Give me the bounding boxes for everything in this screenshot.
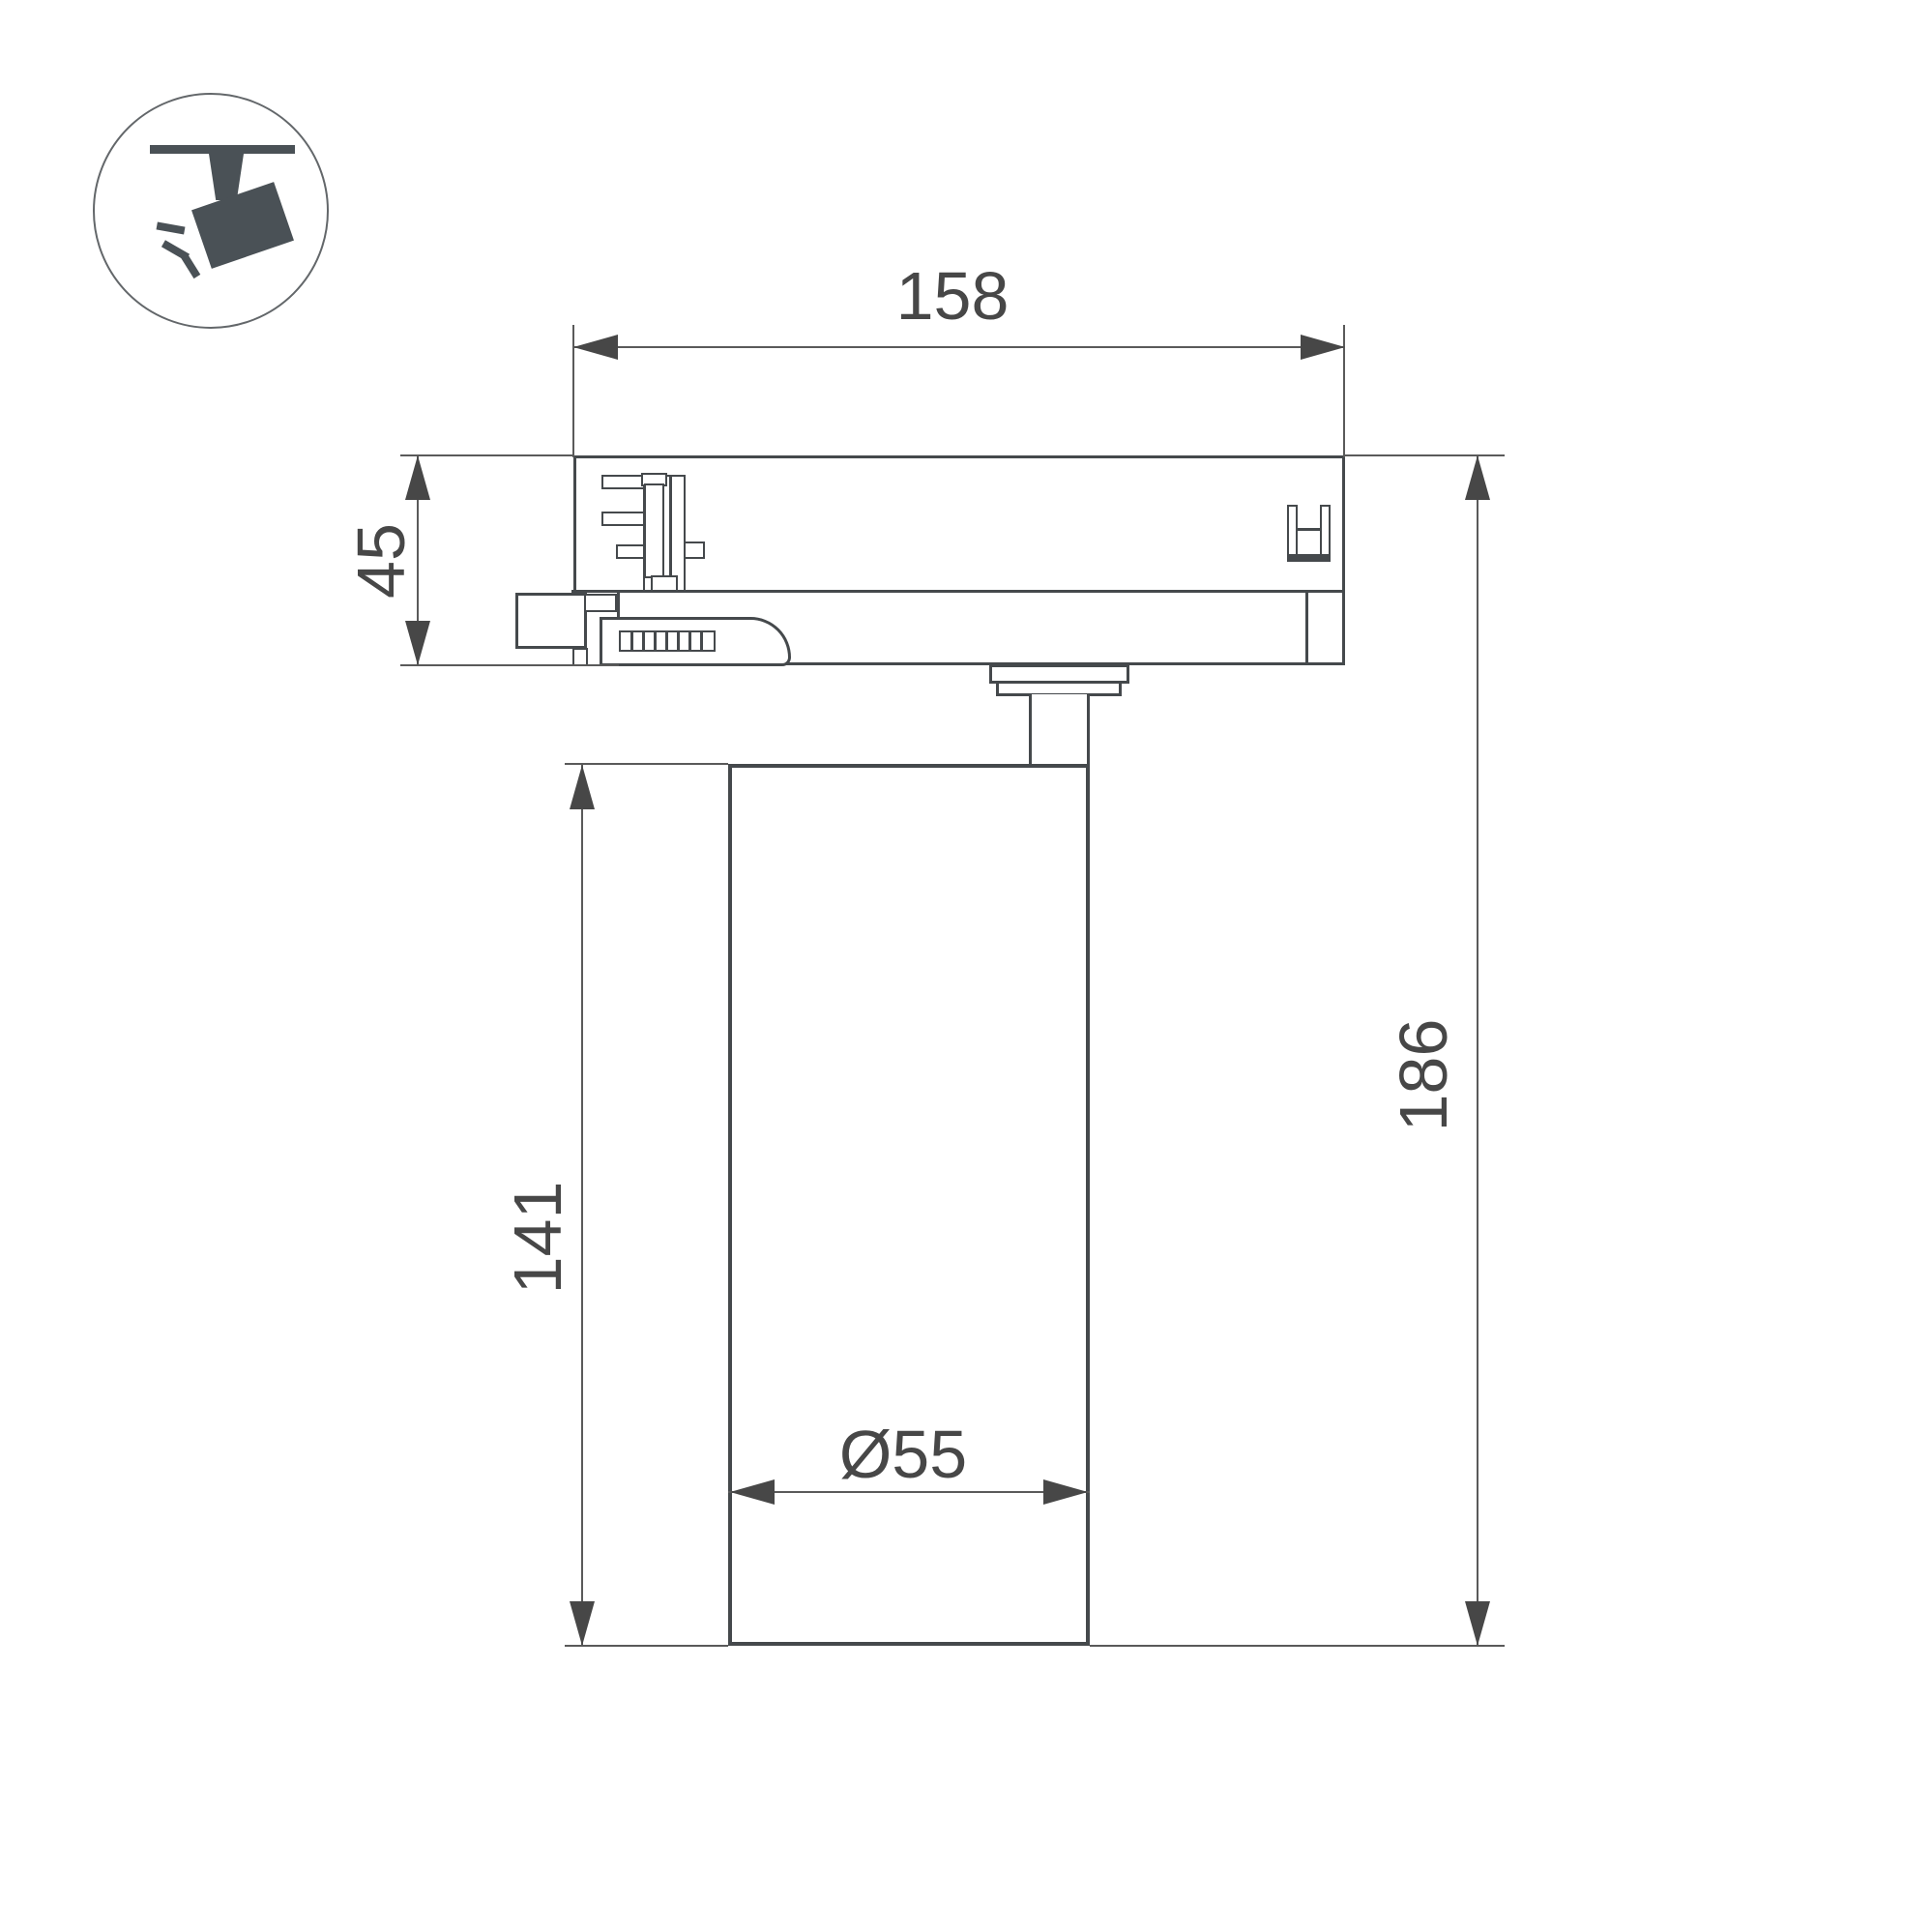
arrowhead — [1465, 1601, 1490, 1646]
channel-bottom — [1287, 554, 1331, 562]
drawing-canvas: 158 45 141 186 Ø55 — [0, 0, 1932, 1932]
adapter-strip-divider — [1305, 590, 1308, 665]
spot-head-icon — [191, 182, 294, 269]
track-bar-icon — [150, 145, 295, 154]
latch-lever — [515, 593, 587, 649]
arrowhead — [730, 1479, 775, 1505]
dim-label-body-height: 141 — [504, 1131, 571, 1344]
light-ray-icon — [157, 222, 186, 235]
contact-tab — [684, 542, 705, 559]
latch-step — [584, 594, 617, 612]
pivot-stem — [1029, 694, 1090, 768]
arrowhead — [1301, 335, 1345, 360]
dim-label-diameter: Ø55 — [777, 1420, 1029, 1488]
grip-rib — [630, 632, 633, 650]
dim-label-total-height: 186 — [1390, 969, 1457, 1182]
track-spotlight-icon — [93, 93, 329, 329]
arrowhead — [570, 765, 595, 809]
dim-label-width: 158 — [846, 262, 1059, 330]
grip-rib — [677, 632, 680, 650]
adapter-body — [573, 455, 1345, 593]
dim-line-141 — [581, 765, 583, 1646]
contact-carrier-inner-line — [669, 477, 672, 590]
arrowhead — [1043, 1479, 1088, 1505]
lamp-body — [728, 764, 1090, 1646]
grip-rib — [700, 632, 703, 650]
dim-label-adapter-height: 45 — [347, 483, 415, 638]
ext-line — [1090, 1645, 1505, 1647]
arrowhead — [573, 335, 618, 360]
arrowhead — [1465, 455, 1490, 500]
contact-pin — [644, 483, 664, 578]
contact-pin-foot — [651, 575, 678, 592]
dim-line-158 — [573, 346, 1345, 348]
contact-prong — [601, 475, 645, 489]
ext-line — [400, 664, 619, 666]
grip-rib — [642, 632, 645, 650]
grip-rib — [654, 632, 657, 650]
grip-rib — [665, 632, 668, 650]
grip-rib — [688, 632, 691, 650]
dim-line-186 — [1477, 455, 1478, 1646]
channel-mid-line — [1296, 528, 1322, 531]
contact-prong — [616, 544, 645, 559]
contact-prong — [601, 512, 645, 526]
arrowhead — [570, 1601, 595, 1646]
light-ray-icon — [181, 253, 201, 278]
